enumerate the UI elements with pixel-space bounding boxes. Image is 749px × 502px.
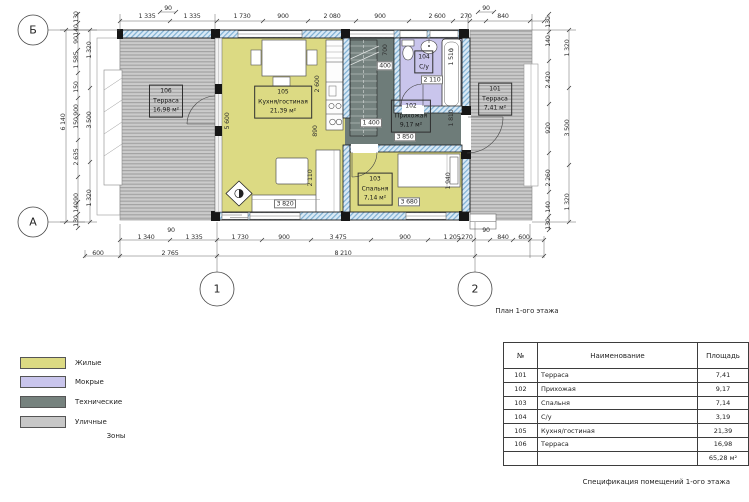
floor-plan-page: 901 3351 3351 7309002 0809002 6002709084… <box>0 0 749 502</box>
table-cell: 106 <box>504 437 538 451</box>
table-row: 101Терраса7,41 <box>504 369 749 383</box>
spec-table: №НаименованиеПлощадь 101Терраса7,41102Пр… <box>503 342 749 466</box>
table-header-row: №НаименованиеПлощадь <box>504 343 749 369</box>
table-cell <box>538 451 698 465</box>
table-cell: 102 <box>504 382 538 396</box>
table-cell: 101 <box>504 369 538 383</box>
table-header-cell: Площадь <box>698 343 749 369</box>
table-row: 102Прихожая9,17 <box>504 382 749 396</box>
plan-caption: План 1-ого этажа <box>495 307 558 315</box>
table-cell: 105 <box>504 424 538 438</box>
table-cell: 9,17 <box>698 382 749 396</box>
table-cell: Терраса <box>538 369 698 383</box>
spec-table-caption: Спецификация помещений 1-ого этажа <box>500 478 730 486</box>
bed-icon <box>398 154 460 187</box>
table-cell: Терраса <box>538 437 698 451</box>
table-cell: 104 <box>504 410 538 424</box>
legend-item-label: Жилые <box>75 359 101 367</box>
spec-table-body: 101Терраса7,41102Прихожая9,17103Спальня7… <box>504 369 749 466</box>
kitchen-counter-icon <box>326 40 343 130</box>
table-cell: 21,39 <box>698 424 749 438</box>
table-cell: 7,14 <box>698 396 749 410</box>
zones-legend: ЖилыеМокрыеТехническиеУличные <box>20 353 122 431</box>
table-cell: 16,98 <box>698 437 749 451</box>
toilet-icon <box>402 40 414 60</box>
legend-item-label: Технические <box>75 398 122 406</box>
legend-item: Технические <box>20 392 122 412</box>
table-row: 106Терраса16,98 <box>504 437 749 451</box>
legend-item: Уличные <box>20 412 122 432</box>
legend-swatch <box>20 416 66 428</box>
table-cell <box>504 451 538 465</box>
table-header-cell: № <box>504 343 538 369</box>
table-header-cell: Наименование <box>538 343 698 369</box>
table-cell: Кухня/гостиная <box>538 424 698 438</box>
spec-table-header: №НаименованиеПлощадь <box>504 343 749 369</box>
terrace-left <box>97 30 215 220</box>
table-cell: 3,19 <box>698 410 749 424</box>
table-cell: 103 <box>504 396 538 410</box>
terrace-right <box>470 30 538 229</box>
table-cell: Прихожая <box>538 382 698 396</box>
legend-title: Зоны <box>96 432 136 440</box>
legend-swatch <box>20 396 66 408</box>
legend-item-label: Мокрые <box>75 378 104 386</box>
bathtub-icon <box>442 39 461 109</box>
spec-table-wrap: №НаименованиеПлощадь 101Терраса7,41102Пр… <box>503 342 749 466</box>
legend-swatch <box>20 376 66 388</box>
table-cell: 7,41 <box>698 369 749 383</box>
table-cell: С/у <box>538 410 698 424</box>
legend-item: Жилые <box>20 353 122 373</box>
table-row: 105Кухня/гостиная21,39 <box>504 424 749 438</box>
stairs-icon <box>348 40 379 136</box>
legend-swatch <box>20 357 66 369</box>
table-row: 104С/у3,19 <box>504 410 749 424</box>
coffee-table-icon <box>276 158 308 184</box>
legend-item-label: Уличные <box>75 418 107 426</box>
legend-item: Мокрые <box>20 373 122 393</box>
table-total-row: 65,28 м² <box>504 451 749 465</box>
table-cell: Спальня <box>538 396 698 410</box>
table-row: 103Спальня7,14 <box>504 396 749 410</box>
table-total-cell: 65,28 м² <box>698 451 749 465</box>
